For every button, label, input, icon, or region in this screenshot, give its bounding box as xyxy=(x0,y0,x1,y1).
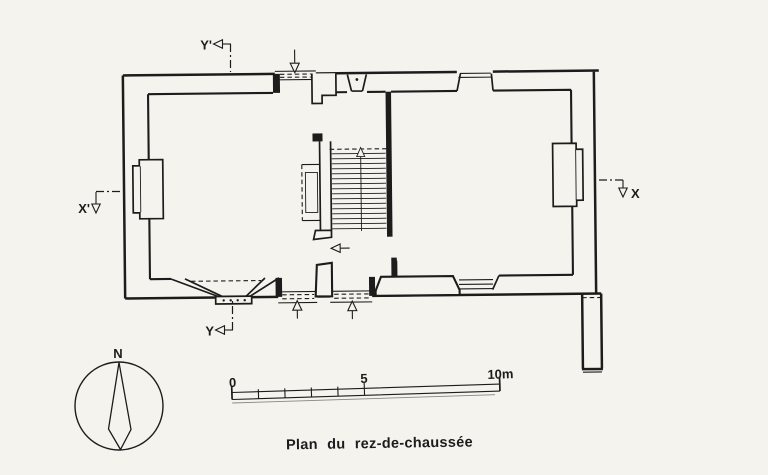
north-loophole-window xyxy=(347,74,366,91)
south-center-pier xyxy=(315,263,332,297)
scale-label-five: 5 xyxy=(360,371,368,386)
compass-circle xyxy=(75,362,163,450)
door-jamb-pier xyxy=(275,278,282,297)
section-label-y-top: Y' xyxy=(200,38,212,53)
section-marker-y-bottom: Y xyxy=(205,299,233,339)
compass-needle-icon xyxy=(109,363,132,450)
north-door xyxy=(273,71,336,104)
door-jamb-pier xyxy=(273,74,280,93)
survey-sheet: Y' Y X' X N 0 5 10m Plan du rez-de- xyxy=(0,0,768,475)
entrance-arrow-south-west xyxy=(293,301,302,319)
compass-rose: N xyxy=(75,346,163,450)
section-label-y-bottom: Y xyxy=(205,324,214,339)
section-marker-x-right: X xyxy=(599,180,640,201)
outer-wall-outline xyxy=(123,70,601,298)
south-door-west xyxy=(275,277,317,302)
inner-wall-outline xyxy=(148,90,573,279)
east-wall-window-niche xyxy=(553,143,584,206)
stair-treads xyxy=(332,153,387,229)
scale-bar: 0 5 10m xyxy=(229,366,514,403)
west-wall-window-niche xyxy=(133,160,164,219)
section-arrow-down-icon xyxy=(92,204,100,213)
north-window xyxy=(457,73,493,91)
south-door-east xyxy=(330,277,375,302)
south-window-embrasure xyxy=(171,278,279,305)
scale-bar-lines xyxy=(232,384,500,399)
section-marker-y-top: Y' xyxy=(200,38,231,73)
south-wall-mid-piece xyxy=(375,276,459,296)
south-window-east xyxy=(459,276,499,290)
entrance-arrow-north xyxy=(290,50,299,73)
stair-west-wall-foot xyxy=(313,230,331,239)
floor-plan-drawing: Y' Y X' X N 0 5 10m Plan du rez-de- xyxy=(0,0,768,475)
section-arrow-left-icon xyxy=(214,40,223,48)
door-jamb-pier xyxy=(369,277,375,296)
south-wall-east-piece xyxy=(499,275,573,276)
section-arrow-left-icon xyxy=(216,326,225,334)
building-plan xyxy=(123,46,603,376)
garden-wall xyxy=(581,293,603,372)
stair-east-wall xyxy=(386,92,393,237)
stair-cut-line xyxy=(330,149,389,150)
section-label-x-left: X' xyxy=(78,201,90,216)
partition-stub xyxy=(392,261,398,277)
section-label-x-right: X xyxy=(631,186,640,201)
doorway-arrow-hall-west xyxy=(331,244,350,253)
compass-north-label: N xyxy=(113,346,122,361)
staircase xyxy=(301,92,397,278)
cupboard-niche xyxy=(302,164,321,220)
section-arrow-down-icon xyxy=(619,188,627,197)
scale-label-ten: 10m xyxy=(487,366,513,382)
north-door-east-pier xyxy=(312,73,336,103)
stair-west-wall xyxy=(301,133,331,239)
section-marker-x-left: X' xyxy=(78,192,124,217)
scale-label-zero: 0 xyxy=(229,375,237,390)
entrance-arrow-south-east xyxy=(348,301,357,319)
plan-title: Plan du rez-de-chaussée xyxy=(286,434,473,453)
